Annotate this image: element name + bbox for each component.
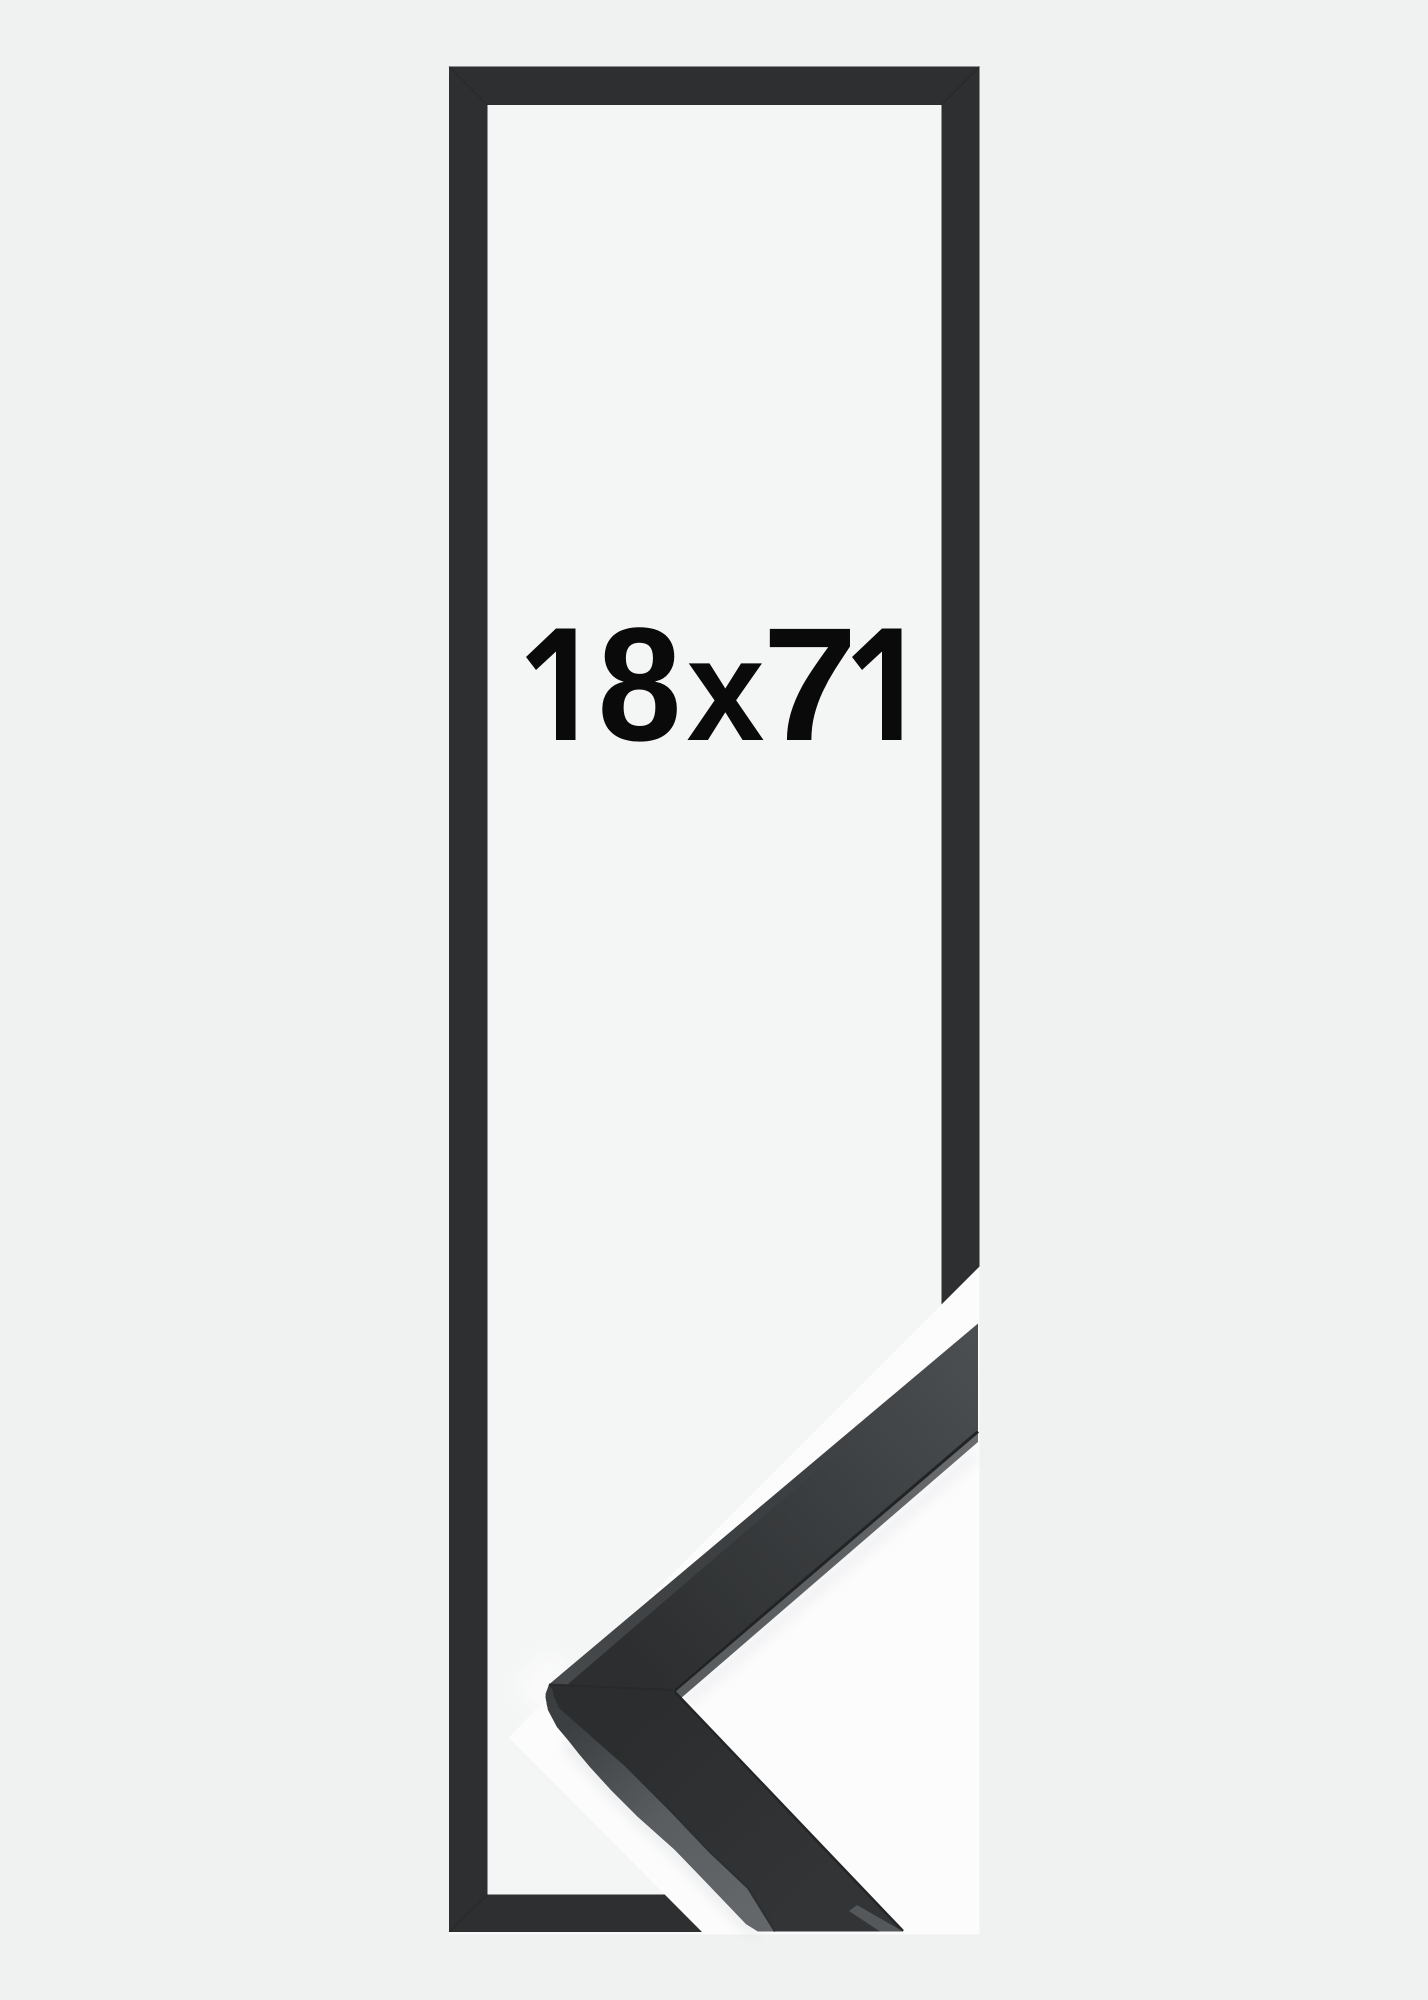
svg-text:x: x bbox=[687, 609, 765, 771]
svg-text:7: 7 bbox=[763, 595, 858, 775]
svg-text:8: 8 bbox=[598, 595, 682, 775]
